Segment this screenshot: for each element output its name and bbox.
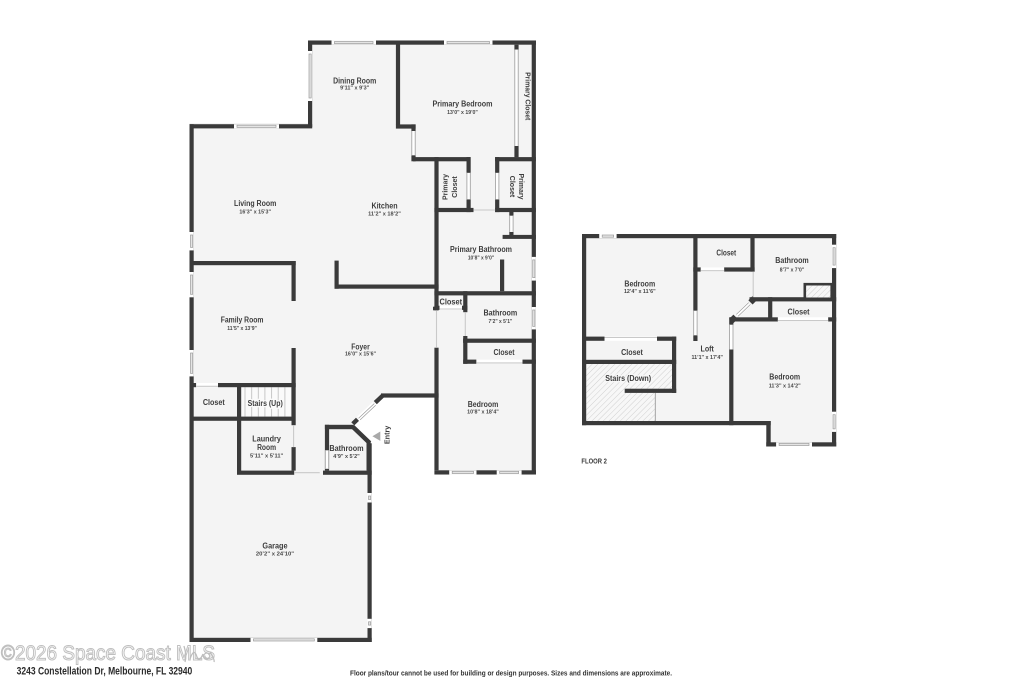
svg-text:11’1" x 17’4": 11’1" x 17’4" (691, 355, 723, 361)
svg-text:8’7" x 7’0": 8’7" x 7’0" (780, 267, 805, 273)
svg-text:3243 Constellation Dr, Melbour: 3243 Constellation Dr, Melbourne, FL 329… (17, 666, 193, 678)
svg-text:11’5" x 13’9": 11’5" x 13’9" (227, 326, 257, 332)
svg-text:Closet: Closet (716, 249, 736, 258)
svg-text:13’0" x 19’0": 13’0" x 19’0" (447, 110, 478, 116)
svg-text:Primary: Primary (517, 174, 524, 200)
svg-text:Bedroom: Bedroom (468, 400, 499, 409)
svg-text:11’2" x 18’2": 11’2" x 18’2" (368, 211, 401, 217)
svg-text:Closet: Closet (508, 176, 515, 198)
svg-text:Bedroom: Bedroom (624, 280, 655, 289)
svg-text:Foyer: Foyer (351, 342, 369, 351)
svg-text:Bathroom: Bathroom (775, 256, 809, 265)
svg-text:Closet: Closet (621, 348, 643, 357)
svg-text:Closet: Closet (203, 398, 225, 407)
svg-text:©2026 Space Coast MLS: ©2026 Space Coast MLS (1, 641, 215, 665)
svg-text:16’0" x 15’6": 16’0" x 15’6" (345, 352, 376, 358)
svg-text:11’3" x 14’2": 11’3" x 14’2" (769, 383, 801, 389)
svg-text:5’11" x 5’11": 5’11" x 5’11" (250, 454, 283, 460)
svg-text:Room: Room (257, 443, 276, 452)
svg-text:Primary Bedroom: Primary Bedroom (433, 100, 493, 109)
svg-text:7’2" x 5’1": 7’2" x 5’1" (489, 319, 513, 325)
svg-text:Bathroom: Bathroom (329, 444, 363, 453)
svg-text:10’8" x 18’4": 10’8" x 18’4" (467, 409, 499, 415)
svg-text:Closet: Closet (452, 176, 459, 198)
svg-text:Stairs (Up): Stairs (Up) (248, 399, 284, 408)
svg-text:9’11" x 9’3": 9’11" x 9’3" (340, 86, 369, 92)
svg-text:10’8" x 9’0": 10’8" x 9’0" (468, 256, 494, 262)
svg-text:Primary: Primary (442, 174, 449, 200)
svg-text:4’9" x 5’2": 4’9" x 5’2" (333, 454, 360, 460)
svg-text:Bedroom: Bedroom (769, 373, 800, 382)
svg-text:Closet: Closet (788, 307, 810, 316)
svg-text:20’2" x 24’10": 20’2" x 24’10" (256, 552, 294, 558)
svg-text:Family Room: Family Room (221, 316, 264, 325)
svg-text:Entry: Entry (382, 425, 391, 444)
svg-text:Primary Bathroom: Primary Bathroom (450, 245, 512, 254)
svg-text:Loft: Loft (701, 345, 715, 354)
svg-text:Primary Closet: Primary Closet (523, 72, 532, 121)
svg-text:Garage: Garage (262, 541, 288, 550)
svg-text:Floor plans/tour cannot be use: Floor plans/tour cannot be used for buil… (350, 668, 672, 677)
svg-text:Bathroom: Bathroom (484, 308, 518, 317)
svg-text:Dining Room: Dining Room (333, 76, 376, 85)
svg-text:16’3" x 15’3": 16’3" x 15’3" (239, 209, 271, 215)
svg-text:Stairs (Down): Stairs (Down) (605, 374, 651, 383)
svg-text:Living Room: Living Room (234, 199, 276, 208)
svg-text:FLOOR 2: FLOOR 2 (581, 456, 607, 465)
svg-text:12’4" x 11’6": 12’4" x 11’6" (624, 289, 656, 295)
svg-text:Closet: Closet (440, 297, 463, 306)
svg-text:Closet: Closet (493, 348, 514, 357)
svg-text:Kitchen: Kitchen (371, 201, 397, 210)
